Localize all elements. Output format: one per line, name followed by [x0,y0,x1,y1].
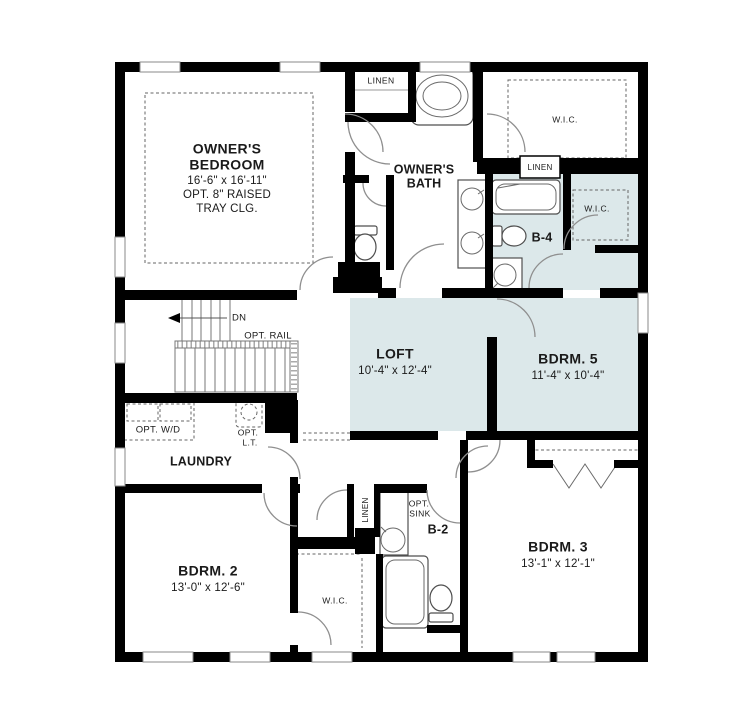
bdrm2-dims: 13'-0" x 12'-6" [171,582,245,594]
bdrm2-title: BDRM. 2 [178,563,238,579]
bdrm3-closet-doors [553,464,617,488]
window [420,62,470,72]
opt-laundry-tub-outline [236,399,262,427]
linen-lower-label: LINEN [361,497,370,522]
opt-lt-label-1: OPT. [238,427,259,437]
opt-lt-label-2: L.T. [242,437,257,447]
bdrm3-dims: 13'-1" x 12'-1" [521,558,595,570]
linen-top-label: LINEN [367,75,394,85]
window [638,293,648,333]
opt-dryer [160,404,191,421]
owners-bedroom-title-1: OWNER'S [193,141,261,157]
b4-toilet [492,226,526,246]
owners-bedroom-dims: 16'-6" x 16'-11" [187,175,266,187]
window [513,652,550,662]
water-closet-door [363,183,386,206]
b2-label: B-2 [428,522,449,536]
bdrm3-door [468,440,500,472]
window [280,62,320,72]
wic-bdrm5-label: W.I.C. [584,203,610,213]
wic-owners-label: W.I.C. [552,114,578,124]
window [115,323,125,363]
b2-door [427,490,460,523]
opt-sink-label-2: SINK [409,508,430,518]
hall-door-left [268,447,300,479]
bdrm3-title: BDRM. 3 [528,539,588,555]
b4-label: B-4 [532,230,553,244]
owners-bedroom-door [300,257,333,290]
floor-plan-page: OWNER'S BEDROOM 16'-6" x 16'-11" OPT. 8"… [0,0,743,722]
bdrm5-dims: 11'-4" x 10'-4" [532,370,605,382]
opt-rail-label: OPT. RAIL [244,331,292,342]
bath-to-loft-door [400,244,444,288]
owners-bedroom-note-1: OPT. 8" RAISED [183,189,271,201]
lower-flight [175,348,298,392]
b2-toilet [429,585,453,622]
owners-vanity [458,180,488,268]
wic-bdrm2-door [298,612,331,645]
laundry-title: LAUNDRY [170,454,233,468]
b4-sink [490,258,522,292]
linen-lower-door [317,490,347,520]
stair-dn-label: DN [232,313,246,324]
owners-garden-tub [411,67,473,125]
window [143,652,193,662]
window [140,62,180,72]
window [230,652,270,662]
owners-bedroom-title-2: BEDROOM [189,157,264,173]
stair-down-arrow [168,313,227,323]
b2-tub [382,556,428,628]
window [312,652,352,662]
opt-wd-label: OPT. W/D [136,425,181,436]
owners-bath-title-2: BATH [407,176,442,190]
wic-bdrm2-label: W.I.C. [322,595,348,605]
opt-laundry-tub-basin [241,404,257,420]
linen-mid-label: LINEN [527,163,552,172]
window [115,237,125,277]
window [115,448,125,486]
wic-owners-door [487,114,525,152]
loft-dims: 10'-4" x 12'-4" [358,365,432,377]
owners-bedroom-note-2: TRAY CLG. [196,203,257,215]
b2-vanity-sink [380,487,408,555]
loft-title: LOFT [376,346,414,362]
window [557,652,595,662]
owners-wc-toilet [354,226,377,260]
bdrm5-title: BDRM. 5 [538,351,598,367]
opt-sink-label-1: OPT. [409,498,430,508]
b4-tub [492,180,560,214]
opt-washer [127,404,158,421]
owners-bath-title-1: OWNER'S [394,162,455,176]
floor-plan-drawing: OWNER'S BEDROOM 16'-6" x 16'-11" OPT. 8"… [0,0,743,722]
